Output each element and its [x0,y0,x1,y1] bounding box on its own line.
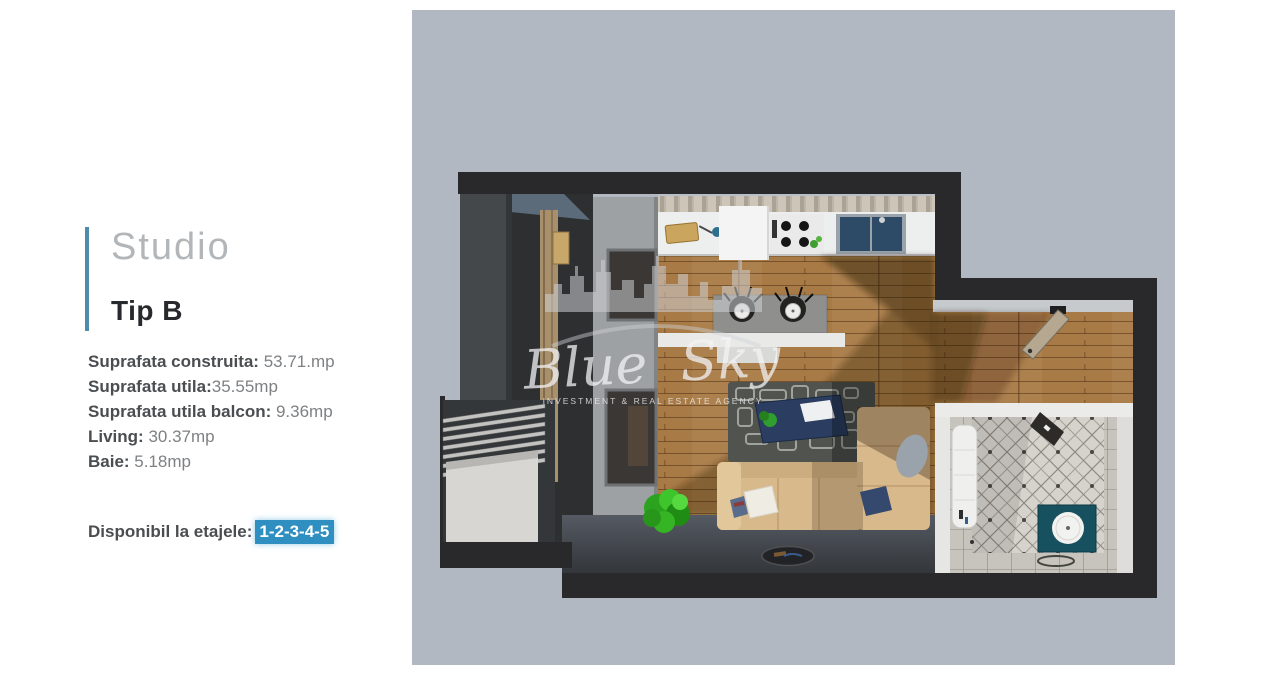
availability-line: Disponibil la etajele:1-2-3-4-5 [88,522,334,542]
spec-suprafata-utila-balcon: Suprafata utila balcon: 9.36mp [88,399,335,424]
cooktop-icon [770,214,824,254]
floor-plan-image: Blue Sky INVESTMENT & REAL ESTATE AGENCY [412,10,1175,665]
spec-suprafata-utila: Suprafata utila:35.55mp [88,374,335,399]
page-title: Studio [111,226,231,269]
tray-table [762,547,814,566]
spec-list: Suprafata construita: 53.71.mp Suprafata… [88,349,335,474]
apartment-type-label: Tip B [111,295,183,327]
page: Studio Tip B Suprafata construita: 53.71… [0,0,1270,675]
floor-plan-svg: Blue Sky INVESTMENT & REAL ESTATE AGENCY [412,10,1175,665]
kitchen-counter [658,196,935,260]
fridge-block [719,206,769,260]
vanity-sink-icon [1038,505,1096,552]
bathtub-icon [952,425,977,528]
bathroom [935,403,1133,573]
floors-highlight: 1-2-3-4-5 [255,520,334,544]
spec-baie: Baie: 5.18mp [88,449,335,474]
living-rug [728,382,875,462]
watermark-tagline: INVESTMENT & REAL ESTATE AGENCY [543,396,764,406]
pillow-white [744,486,778,518]
sink-icon [836,214,906,254]
accent-bar [85,227,89,331]
spec-living: Living: 30.37mp [88,424,335,449]
spec-suprafata-construita: Suprafata construita: 53.71.mp [88,349,335,374]
